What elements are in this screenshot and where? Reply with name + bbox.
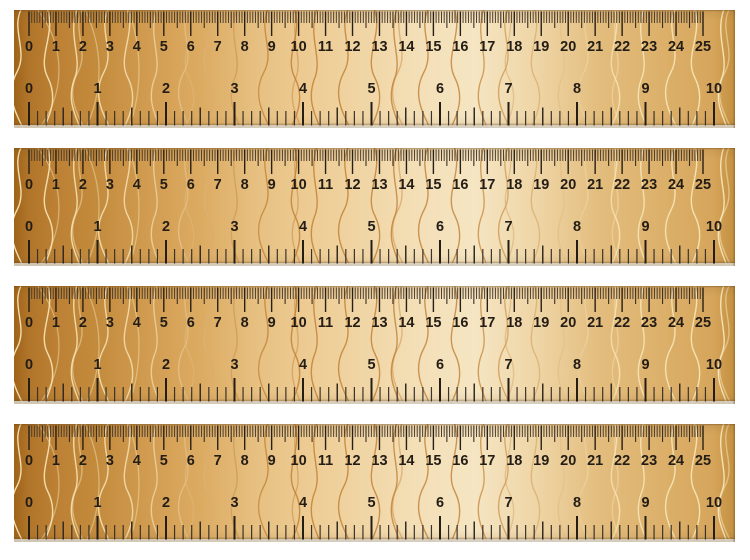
svg-text:7: 7	[504, 219, 512, 235]
ruler-sheet: 0123456789101112131415161718192021222324…	[0, 0, 750, 560]
svg-text:20: 20	[560, 315, 576, 331]
svg-text:9: 9	[268, 315, 276, 331]
svg-text:8: 8	[241, 39, 249, 55]
svg-text:6: 6	[187, 177, 195, 193]
svg-text:8: 8	[573, 81, 581, 97]
svg-text:11: 11	[318, 39, 333, 55]
svg-text:20: 20	[560, 453, 576, 469]
right-edge-line	[734, 286, 736, 404]
svg-text:10: 10	[291, 177, 307, 193]
svg-text:16: 16	[452, 315, 468, 331]
svg-text:6: 6	[187, 315, 195, 331]
svg-text:4: 4	[133, 39, 141, 55]
svg-text:15: 15	[425, 453, 441, 469]
svg-text:18: 18	[506, 453, 522, 469]
svg-text:10: 10	[291, 39, 307, 55]
svg-text:3: 3	[230, 219, 238, 235]
svg-text:12: 12	[344, 177, 360, 193]
svg-text:6: 6	[187, 39, 195, 55]
bottom-bevel	[14, 401, 735, 404]
svg-text:0: 0	[25, 495, 33, 511]
svg-text:17: 17	[479, 315, 495, 331]
svg-text:23: 23	[641, 39, 657, 55]
svg-text:8: 8	[573, 357, 581, 373]
svg-text:5: 5	[367, 495, 375, 511]
svg-text:3: 3	[230, 81, 238, 97]
svg-text:10: 10	[291, 315, 307, 331]
ruler-graphic: 0123456789101112131415161718192021222324…	[14, 148, 735, 266]
svg-text:8: 8	[573, 219, 581, 235]
svg-text:17: 17	[479, 453, 495, 469]
svg-text:13: 13	[371, 315, 387, 331]
svg-text:8: 8	[241, 177, 249, 193]
svg-text:24: 24	[668, 177, 684, 193]
svg-text:2: 2	[162, 357, 170, 373]
svg-text:6: 6	[436, 357, 444, 373]
svg-text:5: 5	[160, 315, 168, 331]
top-edge-line	[14, 10, 735, 11]
svg-text:21: 21	[587, 177, 603, 193]
edge-shading	[14, 148, 735, 266]
svg-text:1: 1	[93, 357, 101, 373]
svg-text:22: 22	[614, 453, 630, 469]
svg-text:8: 8	[241, 453, 249, 469]
svg-text:9: 9	[268, 177, 276, 193]
svg-text:4: 4	[299, 81, 307, 97]
ruler-graphic: 0123456789101112131415161718192021222324…	[14, 286, 735, 404]
svg-text:0: 0	[25, 453, 33, 469]
svg-text:2: 2	[162, 495, 170, 511]
svg-text:2: 2	[79, 315, 87, 331]
svg-text:19: 19	[533, 39, 549, 55]
svg-text:25: 25	[695, 453, 711, 469]
svg-text:25: 25	[695, 39, 711, 55]
svg-text:12: 12	[344, 453, 360, 469]
svg-text:6: 6	[436, 495, 444, 511]
svg-text:7: 7	[504, 81, 512, 97]
svg-text:12: 12	[344, 39, 360, 55]
svg-text:10: 10	[706, 219, 722, 235]
svg-text:25: 25	[695, 315, 711, 331]
svg-text:13: 13	[371, 453, 387, 469]
svg-text:6: 6	[187, 453, 195, 469]
svg-text:17: 17	[479, 177, 495, 193]
svg-text:2: 2	[79, 177, 87, 193]
bottom-bevel	[14, 539, 735, 542]
wooden-ruler-3: 0123456789101112131415161718192021222324…	[14, 286, 735, 404]
svg-text:1: 1	[52, 315, 60, 331]
svg-text:15: 15	[425, 177, 441, 193]
svg-text:1: 1	[93, 219, 101, 235]
svg-text:2: 2	[79, 39, 87, 55]
svg-text:1: 1	[93, 81, 101, 97]
svg-text:2: 2	[79, 453, 87, 469]
bevel-shadow-line	[14, 538, 735, 539]
svg-text:12: 12	[344, 315, 360, 331]
svg-text:20: 20	[560, 177, 576, 193]
svg-text:22: 22	[614, 177, 630, 193]
svg-text:4: 4	[299, 357, 307, 373]
svg-text:19: 19	[533, 315, 549, 331]
ruler-graphic: 0123456789101112131415161718192021222324…	[14, 424, 735, 542]
svg-text:23: 23	[641, 453, 657, 469]
svg-text:18: 18	[506, 315, 522, 331]
svg-text:0: 0	[25, 39, 33, 55]
svg-text:1: 1	[52, 39, 60, 55]
svg-text:0: 0	[25, 177, 33, 193]
svg-text:13: 13	[371, 39, 387, 55]
svg-text:8: 8	[573, 495, 581, 511]
svg-text:1: 1	[52, 177, 60, 193]
svg-text:8: 8	[241, 315, 249, 331]
svg-text:11: 11	[318, 177, 333, 193]
svg-text:7: 7	[504, 357, 512, 373]
svg-text:3: 3	[106, 177, 114, 193]
svg-text:1: 1	[52, 453, 60, 469]
ruler-graphic: 0123456789101112131415161718192021222324…	[14, 10, 735, 128]
svg-text:0: 0	[25, 219, 33, 235]
svg-text:0: 0	[25, 357, 33, 373]
svg-text:9: 9	[641, 219, 649, 235]
svg-text:15: 15	[425, 39, 441, 55]
svg-text:7: 7	[214, 177, 222, 193]
svg-text:4: 4	[133, 315, 141, 331]
svg-text:23: 23	[641, 315, 657, 331]
svg-text:10: 10	[291, 453, 307, 469]
svg-text:21: 21	[587, 453, 603, 469]
svg-text:0: 0	[25, 81, 33, 97]
wooden-ruler-1: 0123456789101112131415161718192021222324…	[14, 10, 735, 128]
svg-text:4: 4	[133, 453, 141, 469]
svg-text:6: 6	[436, 81, 444, 97]
top-edge-line	[14, 286, 735, 287]
svg-text:4: 4	[299, 495, 307, 511]
svg-text:14: 14	[398, 39, 414, 55]
svg-text:22: 22	[614, 315, 630, 331]
bottom-bevel	[14, 125, 735, 128]
svg-text:7: 7	[214, 453, 222, 469]
edge-shading	[14, 286, 735, 404]
svg-text:14: 14	[398, 453, 414, 469]
wooden-ruler-2: 0123456789101112131415161718192021222324…	[14, 148, 735, 266]
wooden-ruler-4: 0123456789101112131415161718192021222324…	[14, 424, 735, 542]
svg-text:7: 7	[214, 39, 222, 55]
svg-text:3: 3	[106, 315, 114, 331]
svg-text:4: 4	[299, 219, 307, 235]
svg-text:0: 0	[25, 315, 33, 331]
svg-text:2: 2	[162, 81, 170, 97]
svg-text:20: 20	[560, 39, 576, 55]
svg-text:16: 16	[452, 39, 468, 55]
svg-text:11: 11	[318, 453, 333, 469]
svg-text:9: 9	[641, 495, 649, 511]
svg-text:19: 19	[533, 453, 549, 469]
svg-text:21: 21	[587, 315, 603, 331]
svg-text:10: 10	[706, 357, 722, 373]
svg-text:5: 5	[160, 453, 168, 469]
svg-text:3: 3	[106, 453, 114, 469]
svg-text:10: 10	[706, 495, 722, 511]
bevel-shadow-line	[14, 124, 735, 125]
svg-text:24: 24	[668, 315, 684, 331]
svg-text:10: 10	[706, 81, 722, 97]
svg-text:6: 6	[436, 219, 444, 235]
bottom-bevel	[14, 263, 735, 266]
svg-text:9: 9	[641, 81, 649, 97]
edge-shading	[14, 10, 735, 128]
bevel-shadow-line	[14, 400, 735, 401]
right-edge-line	[734, 424, 736, 542]
svg-text:5: 5	[160, 177, 168, 193]
right-edge-line	[734, 10, 736, 128]
svg-text:9: 9	[268, 453, 276, 469]
svg-text:7: 7	[214, 315, 222, 331]
svg-text:15: 15	[425, 315, 441, 331]
svg-text:24: 24	[668, 39, 684, 55]
svg-text:18: 18	[506, 177, 522, 193]
bevel-shadow-line	[14, 262, 735, 263]
svg-text:11: 11	[318, 315, 333, 331]
svg-text:16: 16	[452, 177, 468, 193]
svg-text:25: 25	[695, 177, 711, 193]
edge-shading	[14, 424, 735, 542]
svg-text:1: 1	[93, 495, 101, 511]
svg-text:24: 24	[668, 453, 684, 469]
svg-text:5: 5	[367, 219, 375, 235]
top-edge-line	[14, 424, 735, 425]
svg-text:3: 3	[230, 357, 238, 373]
svg-text:5: 5	[160, 39, 168, 55]
svg-text:9: 9	[641, 357, 649, 373]
svg-text:3: 3	[106, 39, 114, 55]
svg-text:5: 5	[367, 81, 375, 97]
top-edge-line	[14, 148, 735, 149]
svg-text:7: 7	[504, 495, 512, 511]
svg-text:19: 19	[533, 177, 549, 193]
svg-text:3: 3	[230, 495, 238, 511]
svg-text:17: 17	[479, 39, 495, 55]
svg-text:18: 18	[506, 39, 522, 55]
svg-text:16: 16	[452, 453, 468, 469]
right-edge-line	[734, 148, 736, 266]
svg-text:13: 13	[371, 177, 387, 193]
svg-text:2: 2	[162, 219, 170, 235]
svg-text:4: 4	[133, 177, 141, 193]
svg-text:23: 23	[641, 177, 657, 193]
svg-text:21: 21	[587, 39, 603, 55]
svg-text:5: 5	[367, 357, 375, 373]
svg-text:22: 22	[614, 39, 630, 55]
svg-text:14: 14	[398, 315, 414, 331]
svg-text:9: 9	[268, 39, 276, 55]
svg-text:14: 14	[398, 177, 414, 193]
